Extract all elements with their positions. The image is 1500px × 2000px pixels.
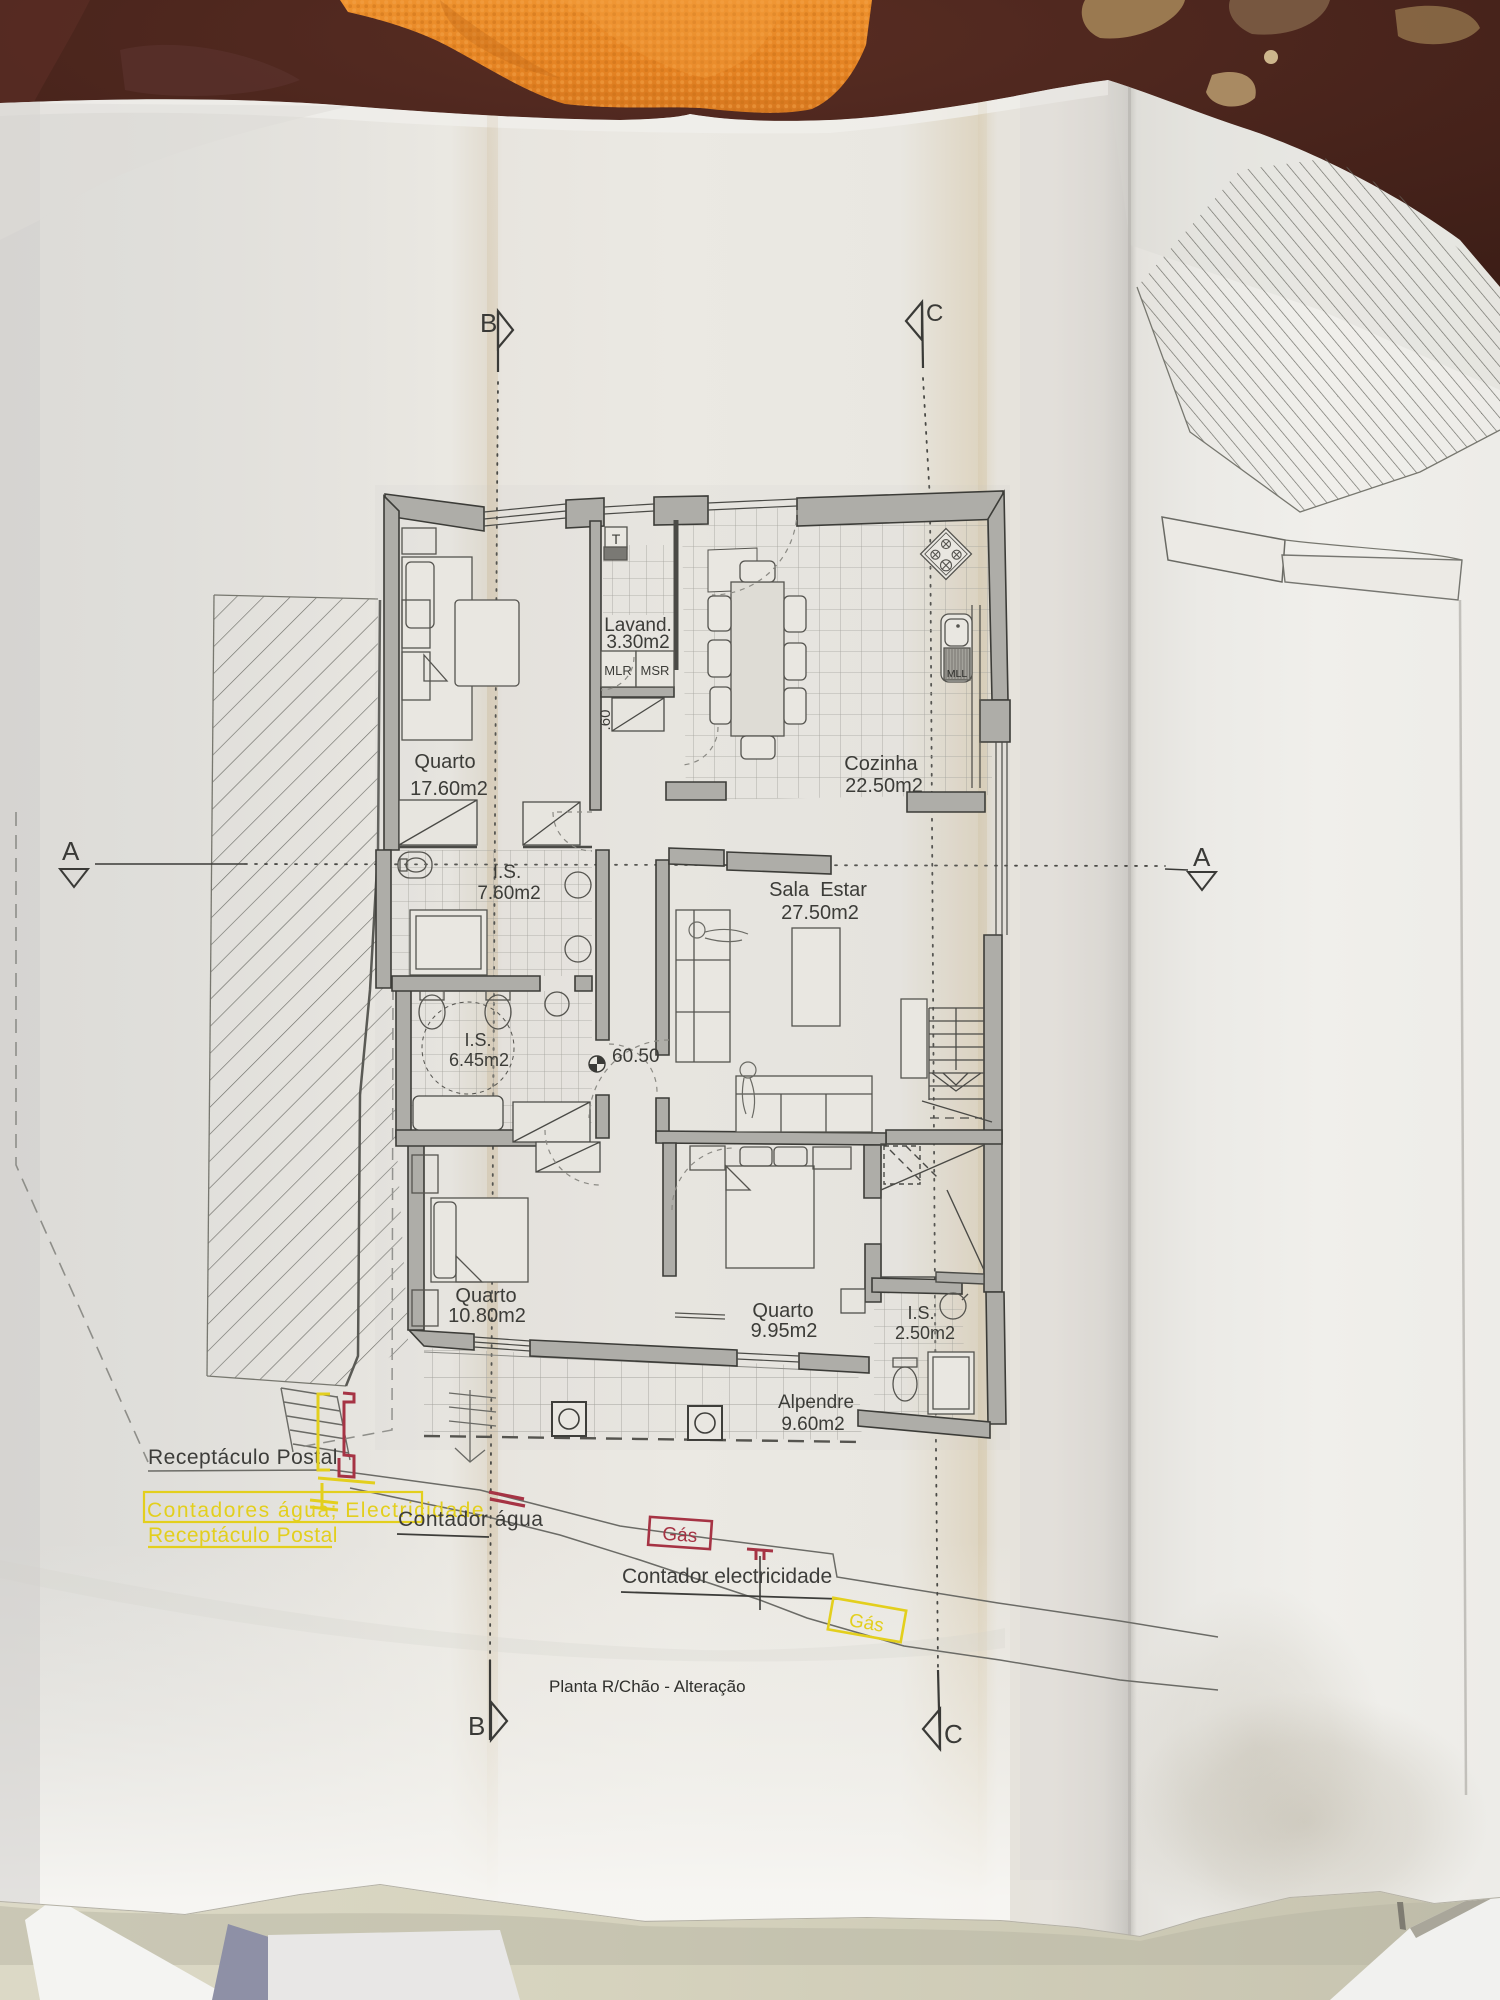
svg-text:27.50m2: 27.50m2 (781, 902, 859, 924)
svg-text:Receptáculo Postal: Receptáculo Postal (148, 1446, 338, 1469)
svg-text:3.30m2: 3.30m2 (606, 632, 669, 653)
svg-text:Contador água: Contador água (398, 1508, 543, 1531)
svg-text:9.95m2: 9.95m2 (751, 1320, 818, 1342)
svg-text:I.S.: I.S. (907, 1303, 934, 1323)
svg-text:7.60m2: 7.60m2 (477, 883, 540, 904)
svg-text:22.50m2: 22.50m2 (845, 775, 923, 797)
svg-text:A: A (1193, 842, 1211, 872)
svg-text:9.60m2: 9.60m2 (781, 1414, 844, 1435)
svg-text:10.80m2: 10.80m2 (448, 1305, 526, 1327)
svg-text:60.50: 60.50 (612, 1046, 660, 1067)
svg-text:MLR: MLR (604, 663, 631, 678)
svg-text:I.S.: I.S. (464, 1030, 491, 1050)
svg-text:Planta R/Chão - Alteração: Planta R/Chão - Alteração (549, 1677, 746, 1696)
svg-text:A: A (62, 836, 80, 866)
svg-text:17.60m2: 17.60m2 (410, 778, 488, 800)
svg-text:B: B (480, 308, 497, 338)
svg-text:Quarto: Quarto (455, 1285, 516, 1307)
svg-text:Receptáculo Postal: Receptáculo Postal (148, 1524, 338, 1547)
svg-text:Sala Estar: Sala Estar (769, 879, 867, 901)
svg-text:B: B (468, 1711, 485, 1741)
svg-text:C: C (926, 300, 943, 327)
svg-text:Gás: Gás (662, 1524, 698, 1547)
svg-text:C: C (944, 1719, 963, 1749)
svg-text:Quarto: Quarto (414, 751, 475, 773)
svg-text:MSR: MSR (641, 663, 670, 678)
svg-text:Cozinha: Cozinha (844, 753, 918, 775)
svg-text:Quarto: Quarto (752, 1300, 813, 1322)
svg-text:Contador electricidade: Contador electricidade (622, 1565, 832, 1588)
svg-text:I.S.: I.S. (493, 862, 522, 883)
svg-text:2.50m2: 2.50m2 (895, 1323, 955, 1343)
svg-text:T: T (612, 531, 621, 547)
svg-text:.60: .60 (597, 710, 614, 731)
svg-text:6.45m2: 6.45m2 (449, 1050, 509, 1070)
svg-text:Alpendre: Alpendre (778, 1392, 854, 1413)
svg-text:MLL: MLL (947, 668, 968, 680)
